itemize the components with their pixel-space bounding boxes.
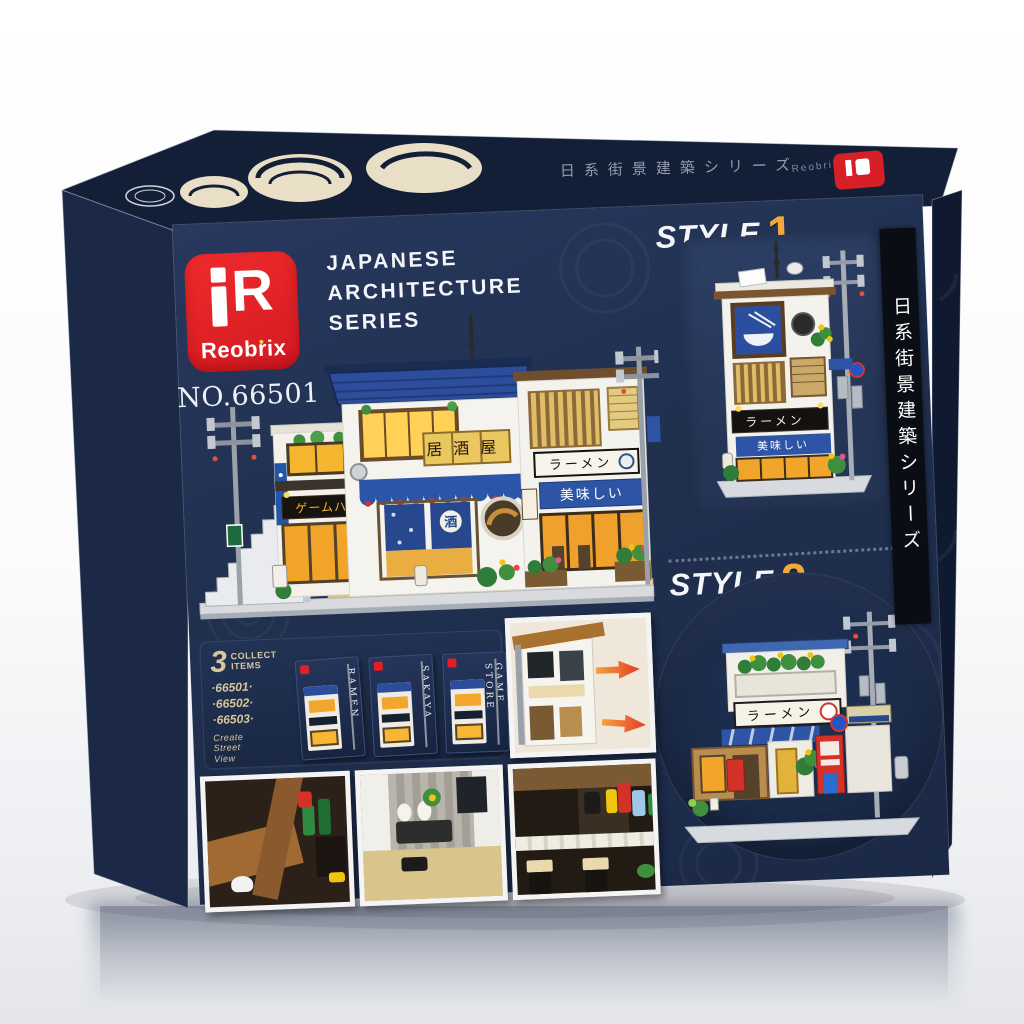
minibox-logo — [374, 662, 384, 672]
photo-detail — [585, 869, 608, 900]
vertical-series-strip: 日系街景建築シリーズ — [879, 228, 931, 625]
photo-detail — [315, 836, 347, 877]
minibox-row: RAMEN SAKAYA GAME STORE — [296, 637, 510, 759]
photo-detail — [329, 872, 345, 883]
red-arrow-icon — [601, 713, 646, 734]
style1-antenna — [773, 240, 804, 279]
style2-wood-shop — [692, 746, 768, 801]
photo-detail — [559, 706, 582, 737]
style1-oishii-banner-text: 美味しい — [757, 438, 809, 453]
photo-detail — [606, 789, 618, 813]
photo-detail — [617, 782, 631, 812]
photo-detail — [363, 845, 508, 906]
photo-detail — [231, 876, 254, 893]
style1-ramen-sign-text: ラーメン — [745, 413, 805, 429]
style2-building: ラーメン — [659, 603, 939, 864]
photo-detail — [529, 705, 554, 740]
photo-detail — [513, 763, 661, 791]
style1-slat-window — [733, 361, 787, 405]
menu-stand — [272, 565, 287, 588]
collect-count: 3 — [210, 649, 228, 678]
minibox-game-store: GAME STORE — [442, 651, 510, 753]
style1-shutter-window — [791, 357, 826, 396]
vent-circle — [792, 313, 815, 336]
vent-fan — [350, 464, 367, 481]
box-front-face: R Reobrix NO.66501 JAPANESE ARCHITECTURE… — [173, 195, 950, 905]
stone-lantern — [415, 565, 428, 585]
photo-detail — [401, 857, 428, 872]
right-building: ラーメン 美味しい — [513, 366, 656, 589]
ramen-art-panel — [732, 303, 784, 357]
photo-detail — [527, 651, 554, 678]
interior-photo-counter — [508, 758, 661, 900]
satellite-dish — [787, 262, 803, 275]
ramen-sign-text: ラーメン — [549, 455, 613, 473]
style2-lantern — [895, 756, 909, 779]
round-window — [482, 498, 524, 540]
minibox-art — [450, 679, 487, 744]
red-arrow-icon — [596, 660, 641, 680]
photo-detail — [529, 872, 552, 901]
photo-detail — [526, 860, 552, 873]
photo-detail — [302, 805, 315, 835]
ramen-bowl-icon — [619, 454, 634, 469]
collect-info: 3 COLLECT ITEMS ·66501· ·66502· ·66503· … — [210, 646, 293, 763]
minibox-logo — [447, 658, 456, 667]
photo-detail — [318, 798, 331, 834]
green-street-sign — [227, 525, 243, 547]
collect-label: COLLECT ITEMS — [230, 649, 277, 672]
photo-detail — [582, 857, 608, 870]
main-building-scene: ゲームハウス 居酒屋 — [176, 298, 669, 647]
style2-entry — [768, 740, 822, 798]
collect-tagline: Create Street View — [213, 730, 292, 765]
photo-detail — [297, 791, 312, 808]
interior-photo-bar — [200, 771, 355, 913]
center-building: 居酒屋 酒 — [324, 357, 541, 597]
style1-side-awning — [829, 358, 853, 370]
antenna-spire — [467, 313, 476, 363]
photo-detail — [559, 650, 584, 681]
interior-photo-kitchen — [355, 765, 508, 907]
soft-reflection — [90, 902, 960, 1012]
red-postbox — [727, 759, 745, 792]
style2-baseplate — [685, 818, 919, 843]
collect-number-3: ·66503· — [212, 709, 291, 728]
pole-banner — [647, 416, 661, 443]
product-photo-page: { "product": { "brand": "Reobrix", "logo… — [0, 0, 1024, 1024]
style2-road-sign — [831, 715, 848, 732]
box-left-face — [62, 190, 188, 908]
menu-board — [522, 489, 538, 520]
photo-detail — [584, 792, 601, 815]
doorway-glow — [386, 548, 473, 577]
izakaya-sign-text: 居酒屋 — [426, 438, 508, 459]
minibox-art — [377, 682, 415, 748]
photo-detail — [456, 776, 487, 813]
minibox-art — [304, 685, 343, 751]
style1-building: ラーメン 美味しい — [680, 235, 891, 515]
minibox-ramen: RAMEN — [295, 656, 366, 761]
minibox-logo — [300, 665, 310, 675]
photo-detail — [515, 831, 660, 851]
photo-detail — [528, 684, 584, 698]
rooftop-sign — [738, 268, 766, 287]
lid-logo — [833, 150, 886, 190]
photo-detail — [648, 793, 661, 815]
collect-items-panel: 3 COLLECT ITEMS ·66501· ·66502· ·66503· … — [198, 628, 507, 770]
exploded-view-photo — [505, 612, 657, 758]
minibox-sakaya: SAKAYA — [368, 654, 438, 758]
photo-detail — [637, 863, 656, 878]
noren-left — [384, 503, 426, 551]
photo-detail — [632, 790, 646, 817]
blue-bin — [823, 773, 838, 794]
sake-noren-text: 酒 — [444, 514, 458, 530]
photo-detail — [396, 820, 453, 844]
oishii-banner-text: 美味しい — [559, 484, 624, 503]
